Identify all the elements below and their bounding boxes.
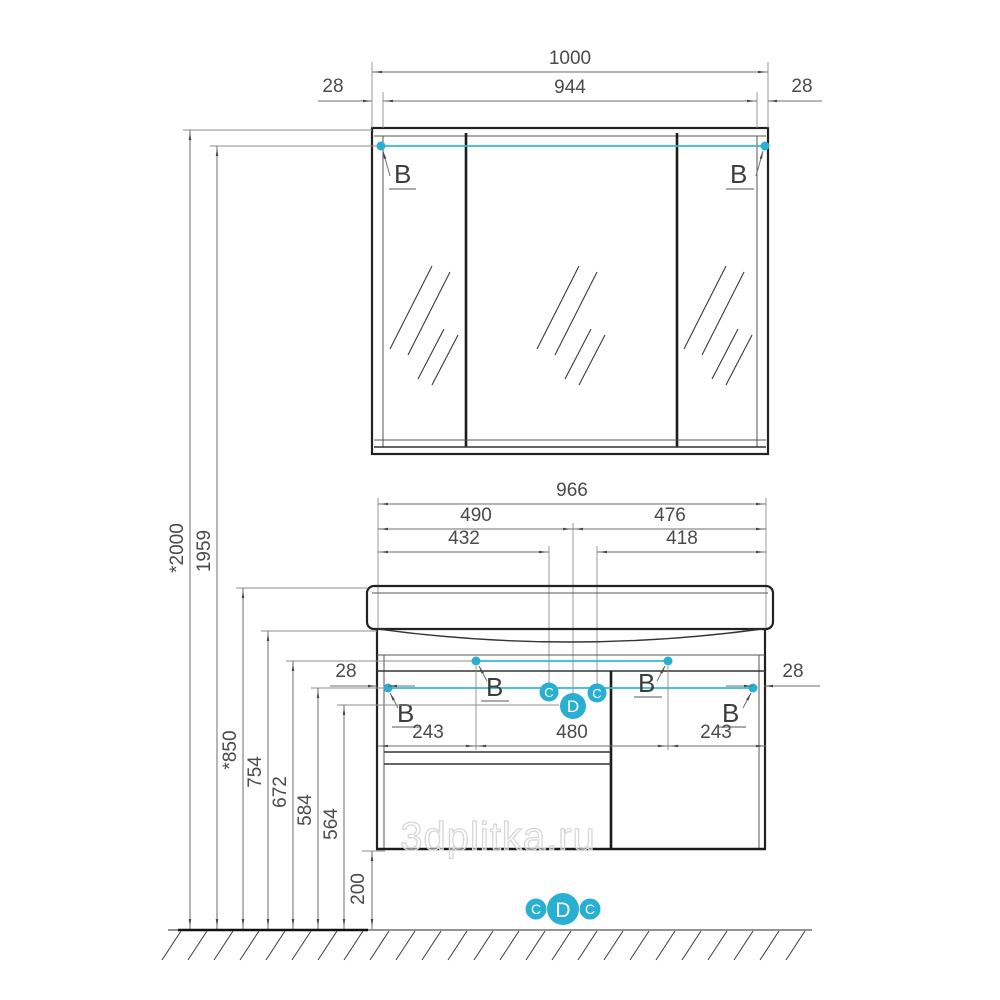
dim-mirror-width-total: 1000 [549, 48, 591, 69]
mounting-point [664, 657, 673, 666]
callout-d-center: D [560, 693, 586, 719]
dim-vanity-side-left: 28 [335, 661, 356, 682]
legend-circles: C C D [526, 893, 601, 925]
washbasin [367, 586, 773, 642]
dim-hole-center: 480 [556, 722, 588, 743]
legend-c-label: C [585, 901, 595, 917]
dim-height-mid-line: 564 [321, 808, 342, 840]
dim-vanity-left-section: 490 [460, 505, 492, 526]
mirror-cabinet: B B [372, 128, 770, 454]
callout-d-label: D [567, 697, 579, 716]
callout-b-label: B [730, 159, 747, 189]
dim-height-lower-holes: 584 [295, 794, 316, 826]
dim-vanity-right-section: 476 [654, 505, 686, 526]
lower-mounting-line [384, 684, 758, 693]
dim-hole-right: 243 [700, 722, 732, 743]
furniture-dimension-drawing: B B 1000 944 28 28 [0, 0, 1000, 1000]
dim-hole-left: 243 [412, 722, 444, 743]
dim-height-cabinet-top: 754 [245, 756, 266, 788]
dim-mirror-width-inner: 944 [554, 77, 586, 98]
mirror-dimensions: 1000 944 28 28 [318, 48, 822, 128]
callout-b-label: B [394, 159, 411, 189]
mirror-callout-b-left: B [383, 151, 416, 189]
dim-mirror-wall-right: 28 [791, 76, 812, 97]
dim-mirror-wall-left: 28 [322, 76, 343, 97]
legend-c-label: C [531, 901, 541, 917]
callout-b-label: B [638, 668, 655, 698]
callout-c-label: C [544, 685, 553, 700]
dim-height-clearance: 200 [348, 873, 369, 905]
dim-vanity-width-total: 966 [556, 480, 588, 501]
dim-height-basin-top: *850 [220, 730, 241, 769]
ground-hatch [162, 930, 812, 960]
vanity-side-dimensions: 28 28 [330, 661, 820, 686]
mounting-point [749, 684, 758, 693]
mirror-cabinet-body [372, 128, 768, 454]
dim-vanity-side-right: 28 [782, 661, 803, 682]
callout-c-label: C [592, 686, 601, 701]
basin-bowl-curve [378, 629, 762, 642]
mirror-mounting-line [377, 142, 770, 151]
legend-d-label: D [555, 899, 570, 922]
dim-vanity-right-inner: 418 [666, 528, 698, 549]
legend-d-center: D [547, 893, 579, 925]
legend-c-right: C [580, 899, 601, 920]
technical-drawing-page: B B 1000 944 28 28 [0, 0, 1000, 1000]
dim-height-mirror-holes: 1959 [194, 530, 215, 572]
legend-c-left: C [526, 899, 547, 920]
mounting-point-right [761, 142, 770, 151]
dim-vanity-left-inner: 432 [448, 528, 480, 549]
watermark: 3dplitka.ru [400, 815, 596, 859]
dim-height-upper-holes: 672 [270, 776, 291, 808]
dim-height-overall: *2000 [167, 523, 188, 573]
upper-mounting-line [472, 657, 673, 666]
callout-c-left: C [540, 683, 559, 702]
vanity-callouts: B B B B C C D [390, 666, 751, 728]
mirror-glass-hatch [390, 266, 752, 385]
callout-c-right: C [588, 684, 607, 703]
callout-b-label: B [486, 672, 503, 702]
